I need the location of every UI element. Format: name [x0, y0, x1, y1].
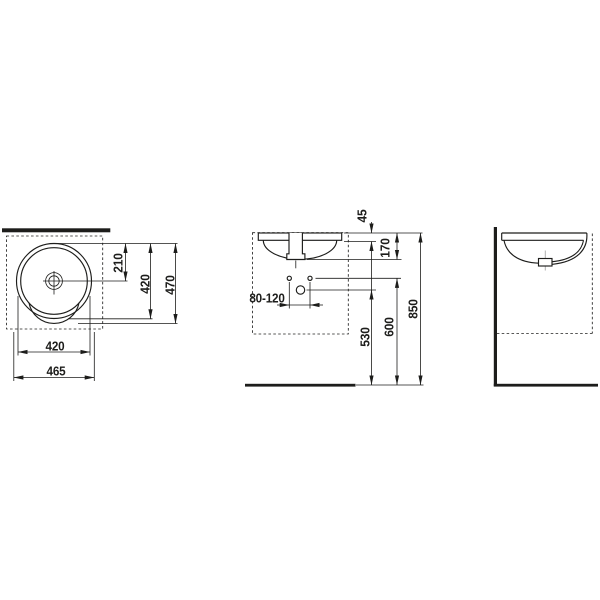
drawing-canvas: [0, 0, 600, 600]
side-view: [494, 227, 598, 387]
bowl-inner-curve-left-side: [504, 240, 539, 263]
dim-label-170: 170: [378, 238, 391, 257]
top-view: [2, 228, 178, 381]
bowl-outer-curve-side: [553, 233, 587, 264]
dim-label-850: 850: [406, 299, 419, 318]
wall-line-side: [494, 227, 497, 386]
fixing-hole-right: [308, 276, 312, 280]
dim-label-420-vertical: 420: [138, 274, 151, 293]
bowl-inner-curve-right-side: [552, 240, 584, 261]
floor-line-side: [494, 384, 598, 387]
dim-label-210: 210: [111, 253, 124, 272]
dim-label-80-120: 80-120: [249, 291, 284, 304]
fixing-hole-left: [287, 276, 291, 280]
drain-column: [287, 233, 305, 260]
dim-label-470: 470: [163, 275, 176, 294]
dim-label-600: 600: [383, 317, 396, 336]
drain-outlet-hole: [296, 286, 304, 294]
dim-label-420-horizontal: 420: [46, 339, 65, 352]
drain-block-side: [539, 259, 553, 267]
technical-drawing: 210 420 470 420 465 45 170 80-120 530 60…: [0, 0, 600, 600]
dim-label-465: 465: [47, 364, 66, 377]
wall-section-bar: [2, 228, 110, 232]
dim-label-45: 45: [355, 209, 368, 222]
dim-label-530: 530: [358, 327, 371, 346]
floor-line-front: [245, 384, 356, 387]
